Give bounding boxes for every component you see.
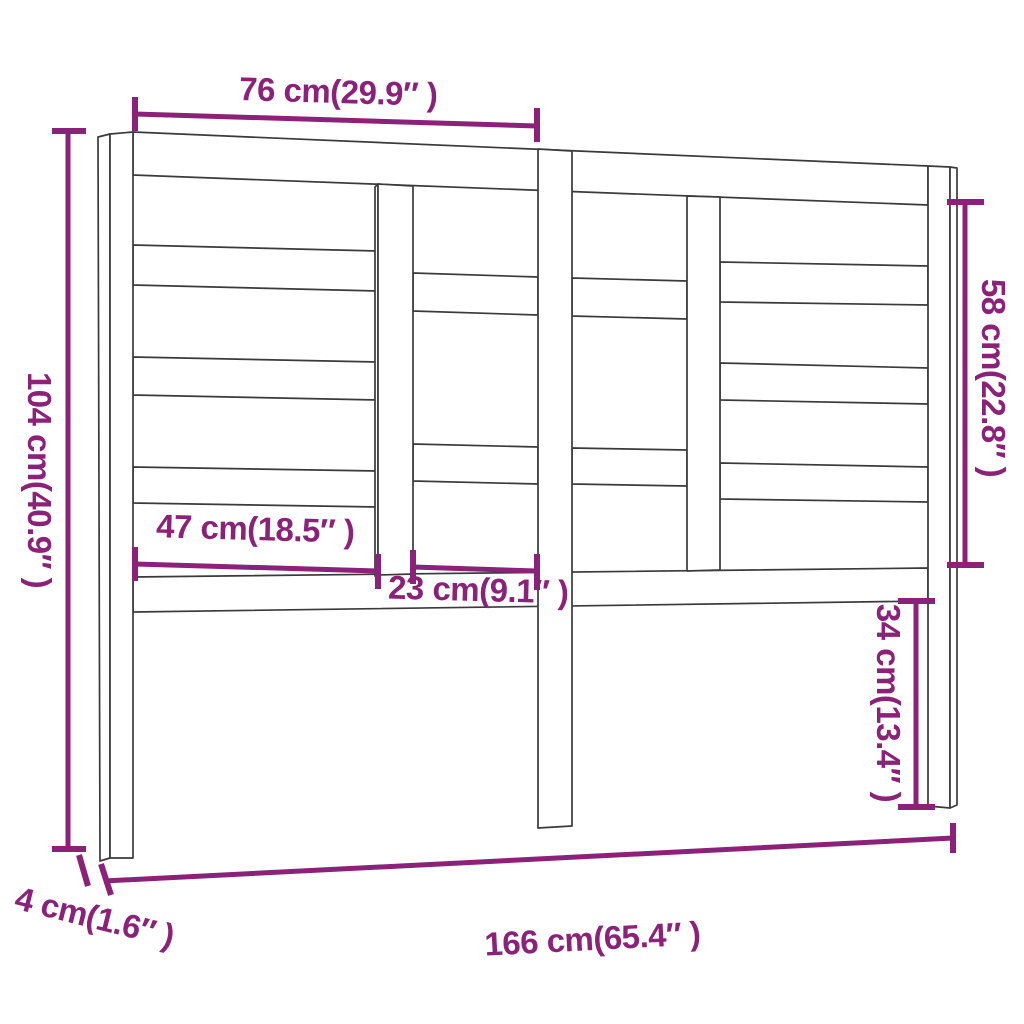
dimension-label: 166 cm(65.4″ )	[484, 914, 702, 962]
right-mid-slat	[687, 196, 720, 571]
dimension-label: 4 cm(1.6″ )	[11, 879, 178, 954]
dimension-label: 76 cm(29.9″ )	[239, 70, 438, 113]
dimension-total-width: 166 cm(65.4″ )	[101, 823, 953, 963]
dimension-right-lower-height: 34 cm(13.4″ )	[870, 601, 935, 807]
headboard-dimension-diagram: 76 cm(29.9″ ) 104 cm(40.9″ ) 58 cm(22.8″…	[0, 0, 1024, 1024]
dimension-tick	[79, 855, 88, 886]
dimension-label: 23 cm(9.1″ )	[388, 568, 569, 610]
dimension-line	[135, 114, 537, 126]
top-rail	[133, 132, 928, 205]
left-mid-slat	[378, 184, 413, 575]
slat-board	[413, 444, 538, 484]
slat-board	[572, 448, 687, 486]
slat-board	[720, 262, 928, 305]
slat-board	[720, 363, 928, 404]
left-leg-side	[98, 134, 110, 861]
center-post	[538, 149, 572, 828]
slat-board	[133, 467, 378, 507]
dimension-line	[104, 838, 953, 881]
right-leg	[928, 166, 950, 808]
diagram-svg: 76 cm(29.9″ ) 104 cm(40.9″ ) 58 cm(22.8″…	[0, 0, 1024, 1024]
dimension-line	[135, 564, 378, 571]
slat-board	[413, 273, 538, 315]
dimension-label: 58 cm(22.8″ )	[975, 279, 1012, 477]
right-leg-side	[950, 167, 957, 808]
slat-board	[133, 357, 378, 400]
dimension-label: 104 cm(40.9″ )	[21, 372, 58, 588]
dimension-post-thickness: 4 cm(1.6″ )	[11, 855, 178, 954]
dimension-label: 34 cm(13.4″ )	[870, 604, 907, 802]
dimension-left-height: 104 cm(40.9″ )	[21, 131, 86, 849]
dimension-top-width: 76 cm(29.9″ )	[135, 70, 537, 142]
dimension-label: 47 cm(18.5″ )	[156, 507, 355, 550]
headboard-drawing	[98, 132, 957, 861]
left-leg	[110, 132, 133, 858]
slat-board	[133, 245, 378, 291]
slat-board	[720, 463, 928, 502]
slat-board	[572, 278, 687, 319]
